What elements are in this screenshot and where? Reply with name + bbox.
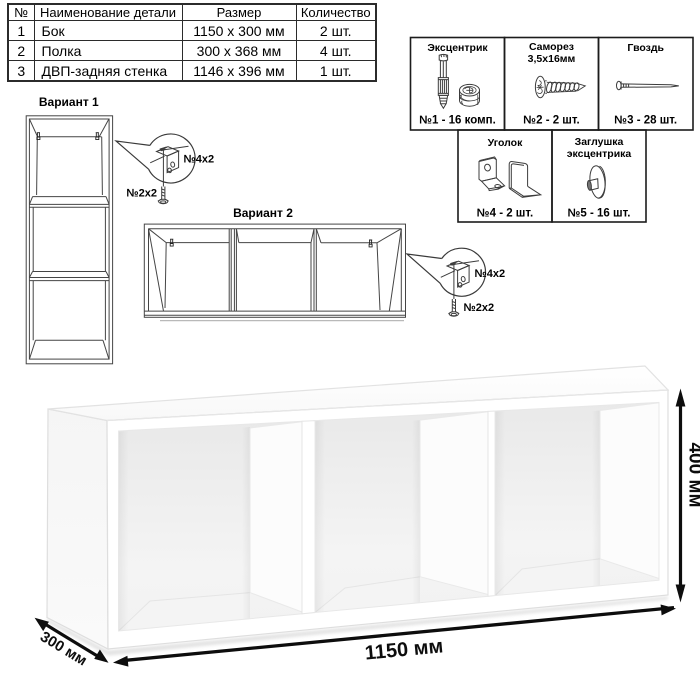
svg-text:№5 - 16 шт.: №5 - 16 шт. — [568, 208, 631, 220]
svg-text:3,5х16мм: 3,5х16мм — [528, 53, 576, 65]
svg-text:Заглушка: Заглушка — [575, 136, 624, 148]
svg-text:№4х2: №4х2 — [184, 154, 215, 166]
svg-text:№1 - 16 комп.: №1 - 16 комп. — [419, 115, 496, 127]
svg-text:Гвоздь: Гвоздь — [627, 42, 664, 54]
svg-text:№4 - 2 шт.: №4 - 2 шт. — [477, 208, 533, 220]
svg-text:№2х2: №2х2 — [464, 302, 495, 314]
svg-text:№2 - 2 шт.: №2 - 2 шт. — [523, 115, 579, 127]
svg-text:№2х2: №2х2 — [126, 188, 157, 200]
svg-text:№3 - 28 шт.: №3 - 28 шт. — [614, 115, 677, 127]
svg-text:Вариант 1: Вариант 1 — [39, 95, 99, 109]
svg-text:эксцентрика: эксцентрика — [567, 148, 632, 160]
svg-text:Саморез: Саморез — [529, 41, 574, 53]
svg-text:№4х2: №4х2 — [475, 268, 506, 280]
svg-text:Вариант 2: Вариант 2 — [233, 206, 293, 220]
svg-text:Эксцентрик: Эксцентрик — [427, 42, 488, 54]
svg-text:400 мм: 400 мм — [685, 442, 700, 507]
svg-text:Уголок: Уголок — [488, 137, 523, 149]
svg-text:1150 мм: 1150 мм — [364, 635, 444, 664]
